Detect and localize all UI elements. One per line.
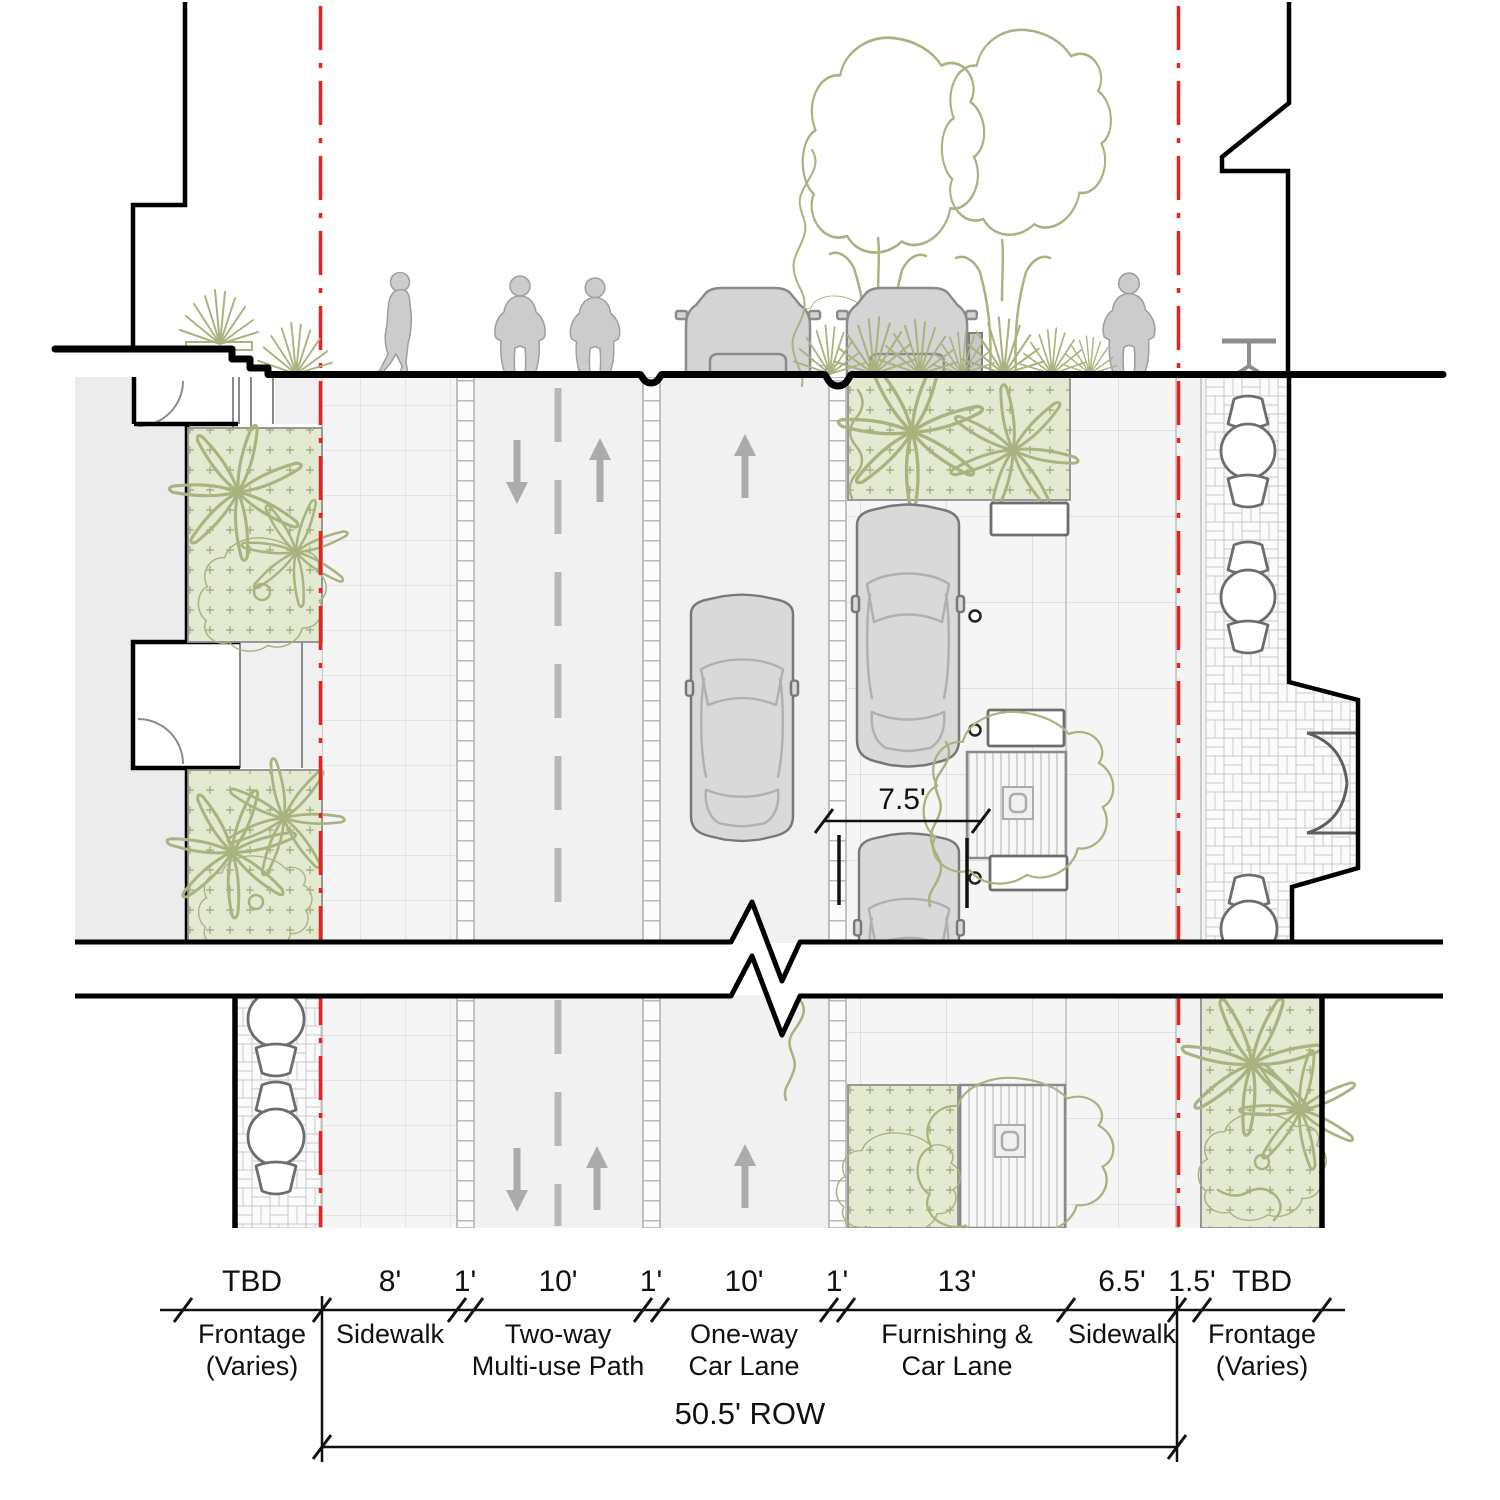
dimension-label: TBD — [1232, 1265, 1292, 1298]
svg-text:Sidewalk: Sidewalk — [336, 1319, 445, 1349]
street-plan-and-section: TBD 8' 1' 10' 1' 10' 1' 13' 6.5' 1.5' TB… — [0, 0, 1500, 1500]
buffer-strip — [829, 995, 846, 1228]
parked-car-plan-icon — [852, 505, 964, 767]
dimension-label: 1.5' — [1168, 1265, 1215, 1298]
svg-text:Multi-use Path: Multi-use Path — [472, 1351, 645, 1381]
svg-text:Car Lane: Car Lane — [901, 1351, 1012, 1381]
cafe-table-icon — [1222, 341, 1276, 375]
svg-text:Frontage: Frontage — [1208, 1319, 1316, 1349]
buffer-strip — [457, 377, 474, 943]
row-total-label: 50.5' ROW — [675, 1396, 826, 1431]
dimension-label: 6.5' — [1098, 1265, 1145, 1298]
buffer-strip — [643, 995, 660, 1228]
building-left-elevation — [133, 2, 185, 349]
dimension-label: 10' — [724, 1265, 763, 1298]
pedestrian-icon — [495, 276, 545, 374]
pedestrian-icon — [570, 278, 619, 374]
dimension-label: 10' — [538, 1265, 577, 1298]
zone-labels: Frontage (Varies) Sidewalk Two-way Multi… — [198, 1319, 1316, 1381]
car-plan-icon — [686, 595, 798, 841]
furnishing-planting-bed — [848, 1085, 958, 1228]
lower-plan — [235, 969, 1383, 1238]
dimension-label: 8' — [379, 1265, 401, 1298]
street-section-diagram: TBD 8' 1' 10' 1' 10' 1' 13' 6.5' 1.5' TB… — [0, 0, 1500, 1500]
bench — [988, 710, 1064, 746]
svg-text:Two-way: Two-way — [505, 1319, 612, 1349]
dimension-label: 1' — [640, 1265, 662, 1298]
elevation — [55, 2, 1443, 386]
svg-text:Frontage: Frontage — [198, 1319, 306, 1349]
buffer-strip — [457, 995, 474, 1228]
bench — [991, 503, 1068, 535]
svg-text:(Varies): (Varies) — [206, 1351, 299, 1381]
parklet-grill — [995, 1125, 1025, 1157]
svg-text:One-way: One-way — [690, 1319, 799, 1349]
svg-text:(Varies): (Varies) — [1216, 1351, 1309, 1381]
buffer-strip — [643, 377, 660, 943]
svg-text:Furnishing &: Furnishing & — [881, 1319, 1033, 1349]
dimension-label: 1' — [826, 1265, 848, 1298]
svg-text:Car Lane: Car Lane — [688, 1351, 799, 1381]
parklet-grill — [1003, 787, 1033, 819]
row-dimension: 50.5' ROW — [313, 1396, 1186, 1459]
dimension-label: 1' — [454, 1265, 476, 1298]
car-front-icon — [676, 288, 820, 375]
dimension-label: TBD — [222, 1265, 282, 1298]
building-right-elevation — [1222, 2, 1289, 373]
bollard — [970, 611, 981, 622]
entry-walkway — [275, 377, 322, 424]
dimension-label: 13' — [937, 1265, 976, 1298]
stall-dimension-label: 7.5' — [878, 783, 925, 816]
entry-walkway — [240, 642, 322, 768]
svg-text:Sidewalk: Sidewalk — [1068, 1319, 1177, 1349]
pedestrian-icon — [374, 273, 411, 377]
